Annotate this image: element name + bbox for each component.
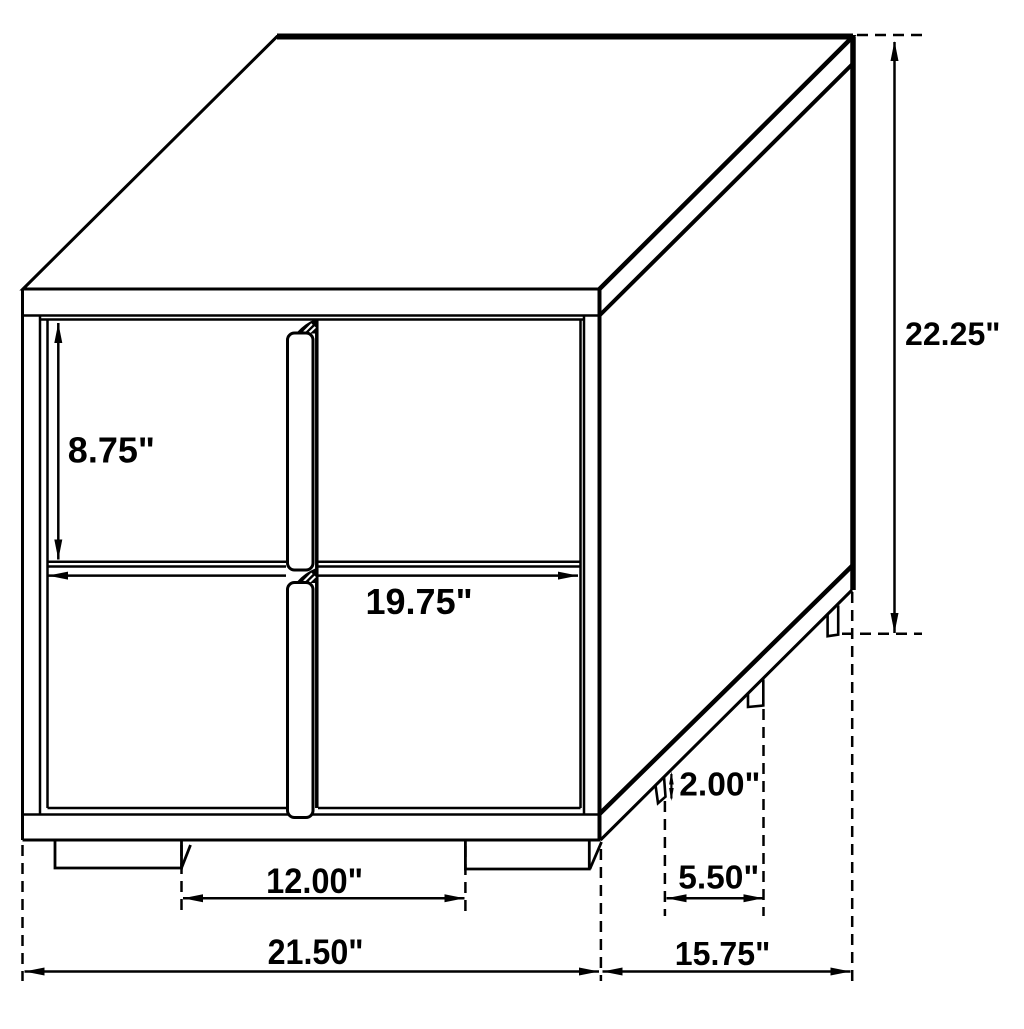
svg-text:21.50": 21.50" <box>268 932 364 972</box>
svg-text:12.00": 12.00" <box>266 861 363 901</box>
svg-text:8.75": 8.75" <box>68 430 155 471</box>
svg-text:15.75": 15.75" <box>675 936 771 973</box>
svg-text:5.50": 5.50" <box>678 860 759 897</box>
svg-text:19.75": 19.75" <box>366 581 473 622</box>
svg-text:22.25": 22.25" <box>905 316 1001 352</box>
svg-text:2.00": 2.00" <box>679 767 760 804</box>
